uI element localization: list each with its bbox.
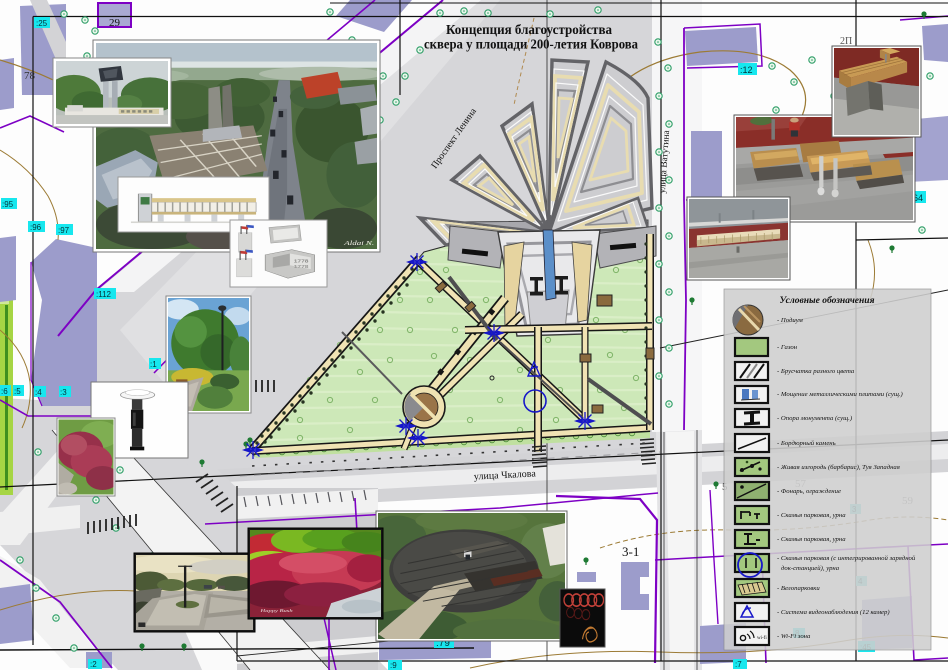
- svg-text:- Мощение металлическими плита: - Мощение металлическими плитами (сущ.): [777, 391, 904, 398]
- svg-text:- Живая изгородь (барбарис), Т: - Живая изгородь (барбарис), Туя Западна…: [777, 464, 900, 471]
- svg-text:wi-fi: wi-fi: [757, 636, 767, 641]
- svg-text::3: :3: [60, 388, 67, 397]
- svg-text::4: :4: [35, 388, 42, 397]
- svg-text:Условные обозначения: Условные обозначения: [780, 295, 875, 306]
- svg-text:- Wi-Fi зона: - Wi-Fi зона: [777, 633, 811, 640]
- svg-text::112: :112: [96, 290, 112, 299]
- svg-text::6: :6: [1, 387, 8, 396]
- svg-text:- Газон: - Газон: [777, 344, 798, 351]
- svg-text::96: :96: [30, 223, 42, 232]
- svg-text:Happy Bush: Happy Bush: [259, 609, 293, 614]
- svg-text:- Брусчатка разного цвета: - Брусчатка разного цвета: [777, 368, 855, 375]
- svg-text::9: :9: [390, 661, 397, 670]
- svg-text:- Велопарковки: - Велопарковки: [777, 585, 820, 592]
- svg-text:78: 78: [24, 70, 36, 82]
- svg-text:- Система видеонаблюдения (12: - Система видеонаблюдения (12 камер): [777, 609, 890, 616]
- svg-text:3-1: 3-1: [622, 544, 639, 559]
- svg-text::95: :95: [2, 200, 14, 209]
- svg-text::1: :1: [150, 360, 157, 369]
- svg-text:- Фонарь, ограждение: - Фонарь, ограждение: [777, 488, 841, 495]
- svg-text:29: 29: [109, 17, 121, 29]
- svg-text:- Скамья парковая, урна: - Скамья парковая, урна: [777, 512, 846, 519]
- svg-text:1778: 1778: [294, 259, 309, 264]
- svg-text::25: :25: [36, 19, 48, 28]
- svg-text:1778: 1778: [294, 265, 309, 270]
- svg-text:Aldai N.: Aldai N.: [343, 239, 374, 247]
- svg-text:2П: 2П: [840, 36, 852, 47]
- svg-text::2: :2: [90, 660, 97, 669]
- svg-text:сквера у площади 200-летия Ков: сквера у площади 200-летия Коврова: [424, 37, 638, 52]
- svg-text:Концепция благоустройства: Концепция благоустройства: [446, 22, 612, 37]
- svg-text::97: :97: [58, 226, 70, 235]
- svg-text::5: :5: [14, 387, 21, 396]
- svg-text:- Скамья парковая (с интегриро: - Скамья парковая (с интегрированной зар…: [777, 555, 916, 562]
- svg-text:док-станцией), урна: док-станцией), урна: [781, 565, 840, 572]
- svg-text::7: :7: [735, 660, 742, 669]
- svg-text:- Бордюрный камень: - Бордюрный камень: [777, 440, 836, 447]
- svg-text::12: :12: [740, 65, 753, 75]
- svg-text:- Опора монумента (сущ.): - Опора монумента (сущ.): [777, 415, 853, 422]
- svg-text:- Подиум: - Подиум: [777, 317, 804, 324]
- svg-text:- Скамья парковая, урна: - Скамья парковая, урна: [777, 536, 846, 543]
